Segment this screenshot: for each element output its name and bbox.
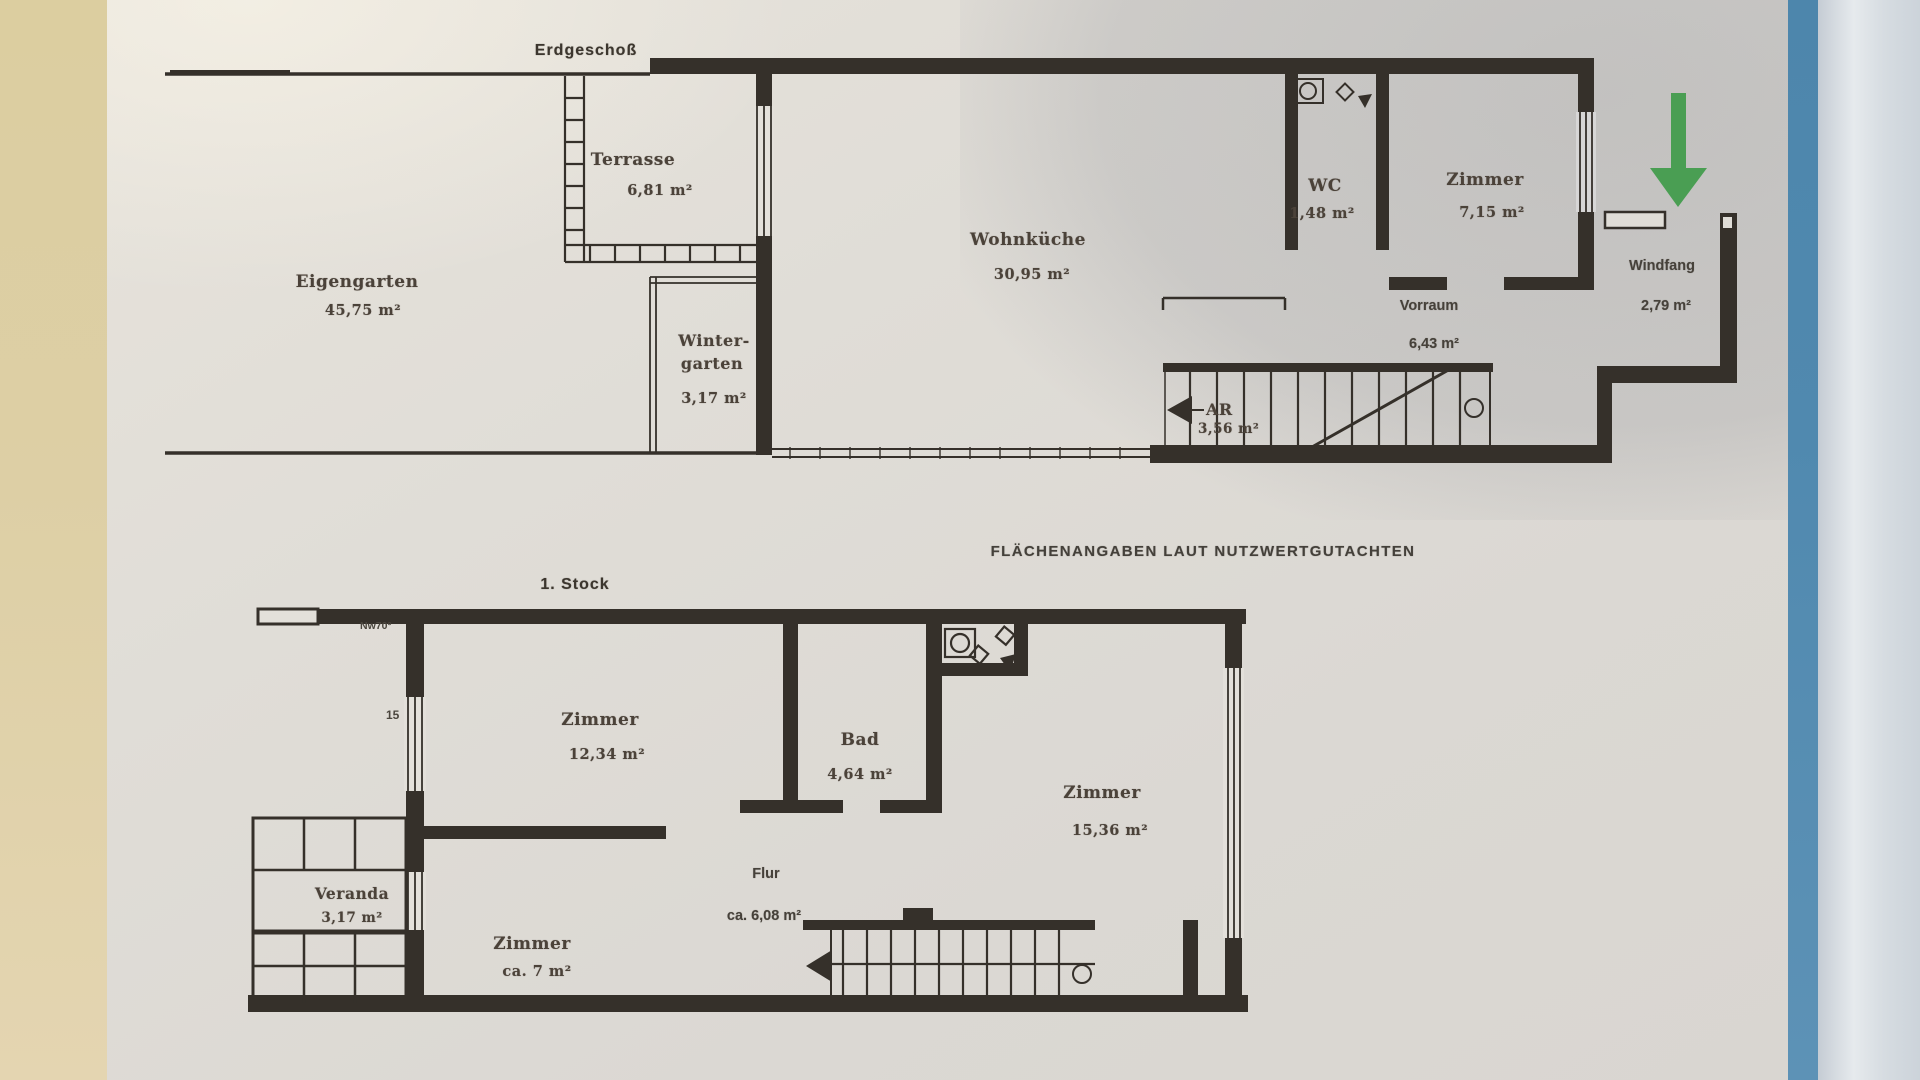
area-note-title: FLÄCHENANGABEN LAUT NUTZWERTGUTACHTEN — [903, 543, 1503, 560]
gf-wc-fixtures — [1293, 79, 1372, 108]
room-area-flur: ca. 6,08 m² — [694, 908, 834, 924]
gf-entrance-door — [1605, 212, 1665, 228]
ff-east-window — [1223, 668, 1244, 938]
ff-stair-direction-arrow — [806, 950, 832, 982]
gf-outer-walls — [650, 58, 1737, 463]
room-area-eigengarten: 45,75 m² — [293, 302, 433, 319]
room-label-bad: Bad — [790, 730, 930, 750]
room-label-terrasse: Terrasse — [563, 150, 703, 170]
room-area-veranda: 3,17 m² — [277, 910, 427, 926]
room-area-vorraum: 6,43 m² — [1364, 336, 1504, 352]
room-area-bad: 4,64 m² — [790, 766, 930, 783]
room-label-windfang: Windfang — [1592, 258, 1732, 274]
room-label-wohnkueche: Wohnküche — [958, 230, 1098, 250]
dimension-note: 15 — [386, 708, 399, 722]
first-floor-title: 1. Stock — [475, 576, 675, 594]
floorplan-photo: Erdgeschoß 1. Stock FLÄCHENANGABEN LAUT … — [0, 0, 1920, 1080]
gf-south-window-wall — [772, 447, 1150, 459]
wall-note: Nw70° — [360, 620, 392, 632]
room-label-veranda: Veranda — [277, 884, 427, 903]
room-label-eigengarten: Eigengarten — [287, 272, 427, 292]
room-area-ar: 3,56 m² — [1198, 421, 1288, 437]
room-label-wc: WC — [1255, 176, 1395, 196]
gf-east-window — [1576, 112, 1596, 212]
gf-vorraum-opening — [1163, 298, 1285, 310]
room-label-wintergarten-1: Winter- — [644, 331, 784, 350]
room-area-wc: 1,48 m² — [1252, 205, 1392, 222]
room-area-terrasse: 6,81 m² — [590, 182, 730, 199]
room-label-zimmer1-og: Zimmer — [530, 710, 670, 730]
room-label-flur: Flur — [696, 866, 836, 882]
room-label-wintergarten-2: garten — [642, 354, 782, 373]
room-area-zimmer3-og: ca. 7 m² — [467, 963, 607, 980]
room-label-vorraum: Vorraum — [1359, 298, 1499, 314]
room-area-zimmer1-og: 12,34 m² — [537, 746, 677, 763]
ff-staircase — [803, 908, 1095, 998]
room-label-zimmer2-og: Zimmer — [1032, 783, 1172, 803]
room-area-wintergarten: 3,17 m² — [644, 390, 784, 407]
room-area-zimmer-eg: 7,15 m² — [1422, 204, 1562, 221]
ff-wall-stub — [258, 609, 318, 624]
entrance-arrow — [1650, 93, 1707, 207]
room-label-zimmer3-og: Zimmer — [462, 934, 602, 954]
room-area-wohnkueche: 30,95 m² — [962, 266, 1102, 283]
room-area-zimmer2-og: 15,36 m² — [1040, 822, 1180, 839]
room-area-windfang: 2,79 m² — [1596, 298, 1736, 314]
ground-floor-title: Erdgeschoß — [486, 42, 686, 60]
gf-left-window — [754, 106, 774, 236]
room-label-ar: AR — [1206, 400, 1286, 419]
room-label-zimmer-eg: Zimmer — [1415, 170, 1555, 190]
stair-direction-arrow — [1167, 396, 1192, 424]
